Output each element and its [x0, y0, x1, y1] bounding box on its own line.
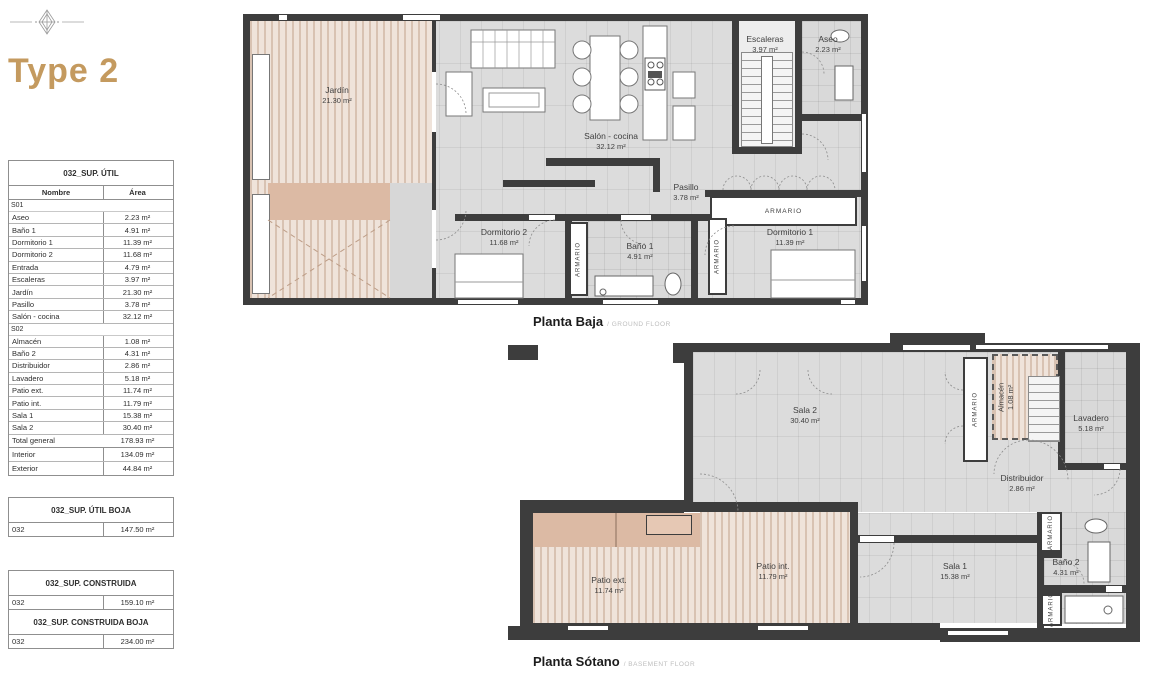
wall: [503, 180, 595, 187]
page-title: Type 2: [8, 52, 119, 91]
basement-floor-plan: ARMARIO ARMARIO ARMARIO Sala 230.: [508, 330, 1143, 650]
wall: [732, 147, 802, 154]
terrace-side-zone: [390, 183, 432, 298]
section-label-s02: S02: [9, 324, 173, 336]
plan-sheet: Type 2 032_SUP. ÚTIL Nombre Área S01 Ase…: [0, 0, 1170, 691]
basement-floor-caption: Planta Sótano/ BASEMENT FLOOR: [533, 653, 695, 671]
col-nombre: Nombre: [9, 186, 104, 199]
table-sup-construida: 032_SUP. CONSTRUIDA 032 159.10 m² 032_SU…: [8, 570, 174, 649]
door-slot: [529, 215, 555, 220]
table-row: Distribuidor2.86 m²: [9, 360, 173, 372]
window-slot: [279, 15, 287, 20]
armario-closet: ARMARIO: [708, 218, 727, 295]
exterior-row: Exterior 44.84 m²: [9, 462, 173, 475]
table-row: Almacén1.08 m²: [9, 336, 173, 348]
section-label-s01: S01: [9, 200, 173, 212]
armario-closet: ARMARIO: [1041, 594, 1062, 626]
wall: [732, 21, 739, 154]
armario-closet: ARMARIO: [1040, 512, 1062, 552]
lavadero-floor: [1065, 352, 1126, 468]
window-slot: [841, 300, 855, 304]
wall: [546, 158, 660, 166]
wall: [653, 158, 660, 192]
glass-door-slot: [432, 72, 436, 132]
table-title: 032_SUP. CONSTRUIDA BOJA: [9, 610, 173, 635]
table-row: 032 159.10 m²: [9, 596, 173, 610]
terrace-band: [268, 183, 390, 220]
window-slot: [862, 114, 866, 172]
wall: [243, 298, 868, 305]
wall: [850, 512, 858, 630]
table-title: 032_SUP. ÚTIL BOJA: [9, 498, 173, 523]
table-row: Jardín21.30 m²: [9, 286, 173, 298]
wall: [243, 14, 868, 21]
table-row: Escaleras3.97 m²: [9, 274, 173, 286]
window-slot: [568, 626, 608, 630]
ground-floor-caption: Planta Baja/ GROUND FLOOR: [533, 313, 671, 331]
window-slot: [903, 345, 970, 350]
table-row: Lavadero5.18 m²: [9, 373, 173, 385]
table-row: Baño 24.31 m²: [9, 348, 173, 360]
stair-rail: [761, 56, 773, 144]
patio-ext-decking: [533, 547, 700, 623]
interior-row: Interior 134.09 m²: [9, 448, 173, 462]
compass-logo-icon: [10, 8, 84, 36]
wall: [455, 214, 713, 221]
wall-stub: [508, 345, 538, 360]
table-row: Dormitorio 211.68 m²: [9, 249, 173, 261]
table-sup-util-boja: 032_SUP. ÚTIL BOJA 032 147.50 m²: [8, 497, 174, 537]
table-row: Pasillo3.78 m²: [9, 299, 173, 311]
window-slot: [403, 15, 440, 20]
planter-box: [646, 515, 692, 535]
wall: [684, 343, 693, 512]
table-row: 032 147.50 m²: [9, 523, 173, 536]
table-row: Sala 115.38 m²: [9, 410, 173, 422]
window-slot: [758, 626, 808, 630]
armario-closet: ARMARIO: [963, 357, 988, 462]
table-row: Sala 230.40 m²: [9, 422, 173, 434]
wall: [520, 500, 533, 640]
col-area: Área: [104, 186, 171, 199]
table-sup-util: 032_SUP. ÚTIL Nombre Área S01 Aseo2.23 m…: [8, 160, 174, 476]
door-slot: [621, 215, 651, 220]
window-slot: [458, 300, 518, 304]
patio-int-decking: [700, 512, 850, 623]
terrace-decking: [268, 220, 390, 298]
table-row: 032 234.00 m²: [9, 635, 173, 648]
aseo-floor: [802, 21, 861, 114]
table-row: Aseo2.23 m²: [9, 212, 173, 224]
window-slot: [948, 631, 1008, 635]
table-row: Patio ext.11.74 m²: [9, 385, 173, 397]
jardin-window: [252, 194, 270, 294]
wall: [1126, 343, 1140, 640]
wall: [795, 21, 802, 147]
wall-stub: [673, 343, 684, 363]
door-slot: [1104, 464, 1120, 469]
door-slot: [1106, 586, 1122, 592]
table-row: Baño 14.91 m²: [9, 224, 173, 236]
wall: [691, 214, 698, 298]
table-row: Entrada4.79 m²: [9, 262, 173, 274]
armario-closet: ARMARIO: [569, 222, 588, 296]
window-slot: [862, 226, 866, 281]
table-row: Dormitorio 111.39 m²: [9, 237, 173, 249]
table-title: 032_SUP. ÚTIL: [9, 161, 173, 186]
table-row: Patio int.11.79 m²: [9, 397, 173, 409]
wall: [243, 14, 250, 305]
table-row: Salón - cocina32.12 m²: [9, 311, 173, 323]
staircase: [1028, 376, 1060, 442]
window-slot: [603, 300, 658, 304]
wall: [684, 502, 858, 512]
armario-closet: ARMARIO: [710, 196, 857, 226]
wall: [520, 500, 684, 513]
total-row: Total general 178.93 m²: [9, 435, 173, 448]
table-column-headers: Nombre Área: [9, 186, 173, 200]
table-title: 032_SUP. CONSTRUIDA: [9, 571, 173, 596]
jardin-window: [252, 54, 270, 180]
wall: [795, 114, 861, 121]
bano1-floor: [588, 221, 691, 298]
door-slot: [860, 536, 894, 542]
glass-door-slot: [432, 210, 436, 268]
ground-floor-plan: ARMARIO ARMARIO ARMARIO: [243, 14, 868, 305]
